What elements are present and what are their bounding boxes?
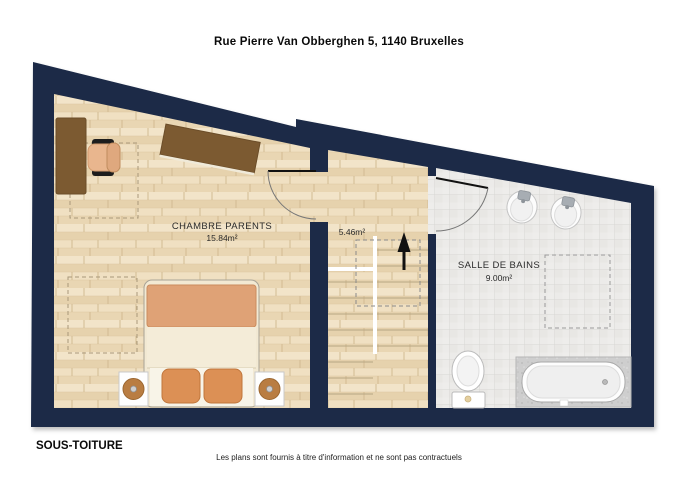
bathtub	[516, 357, 631, 407]
bedroom-door-opening	[310, 172, 328, 222]
room-label-salle-de-bains: SALLE DE BAINS	[458, 260, 540, 271]
floor-plan-drawing: CHAMBRE PARENTS 15.84m² 5.46m² SALLE DE …	[0, 0, 678, 480]
level-label: SOUS-TOITURE	[36, 440, 123, 452]
landing-floor	[328, 150, 428, 408]
stair-railing	[373, 236, 377, 354]
room-label-chambre-parents: CHAMBRE PARENTS	[172, 221, 272, 232]
nightstand-left	[119, 372, 148, 406]
bathroom-door-opening	[428, 176, 436, 234]
desk-chair	[88, 139, 120, 176]
room-area-chambre-parents: 15.84m²	[206, 233, 237, 243]
pillow-left	[162, 369, 200, 403]
stair-railing-return	[328, 267, 373, 271]
room-area-salle-de-bains: 9.00m²	[486, 273, 513, 283]
floor-plan-page: Rue Pierre Van Obberghen 5, 1140 Bruxell…	[0, 0, 678, 480]
bathtub-drain	[603, 380, 608, 385]
nightstand-right	[255, 372, 284, 406]
double-bed	[144, 280, 259, 407]
room-area-palier: 5.46m²	[339, 227, 366, 237]
desk	[56, 118, 86, 194]
pillow-right	[204, 369, 242, 403]
toilet	[452, 351, 485, 408]
disclaimer-text: Les plans sont fournis à titre d'informa…	[0, 453, 678, 462]
